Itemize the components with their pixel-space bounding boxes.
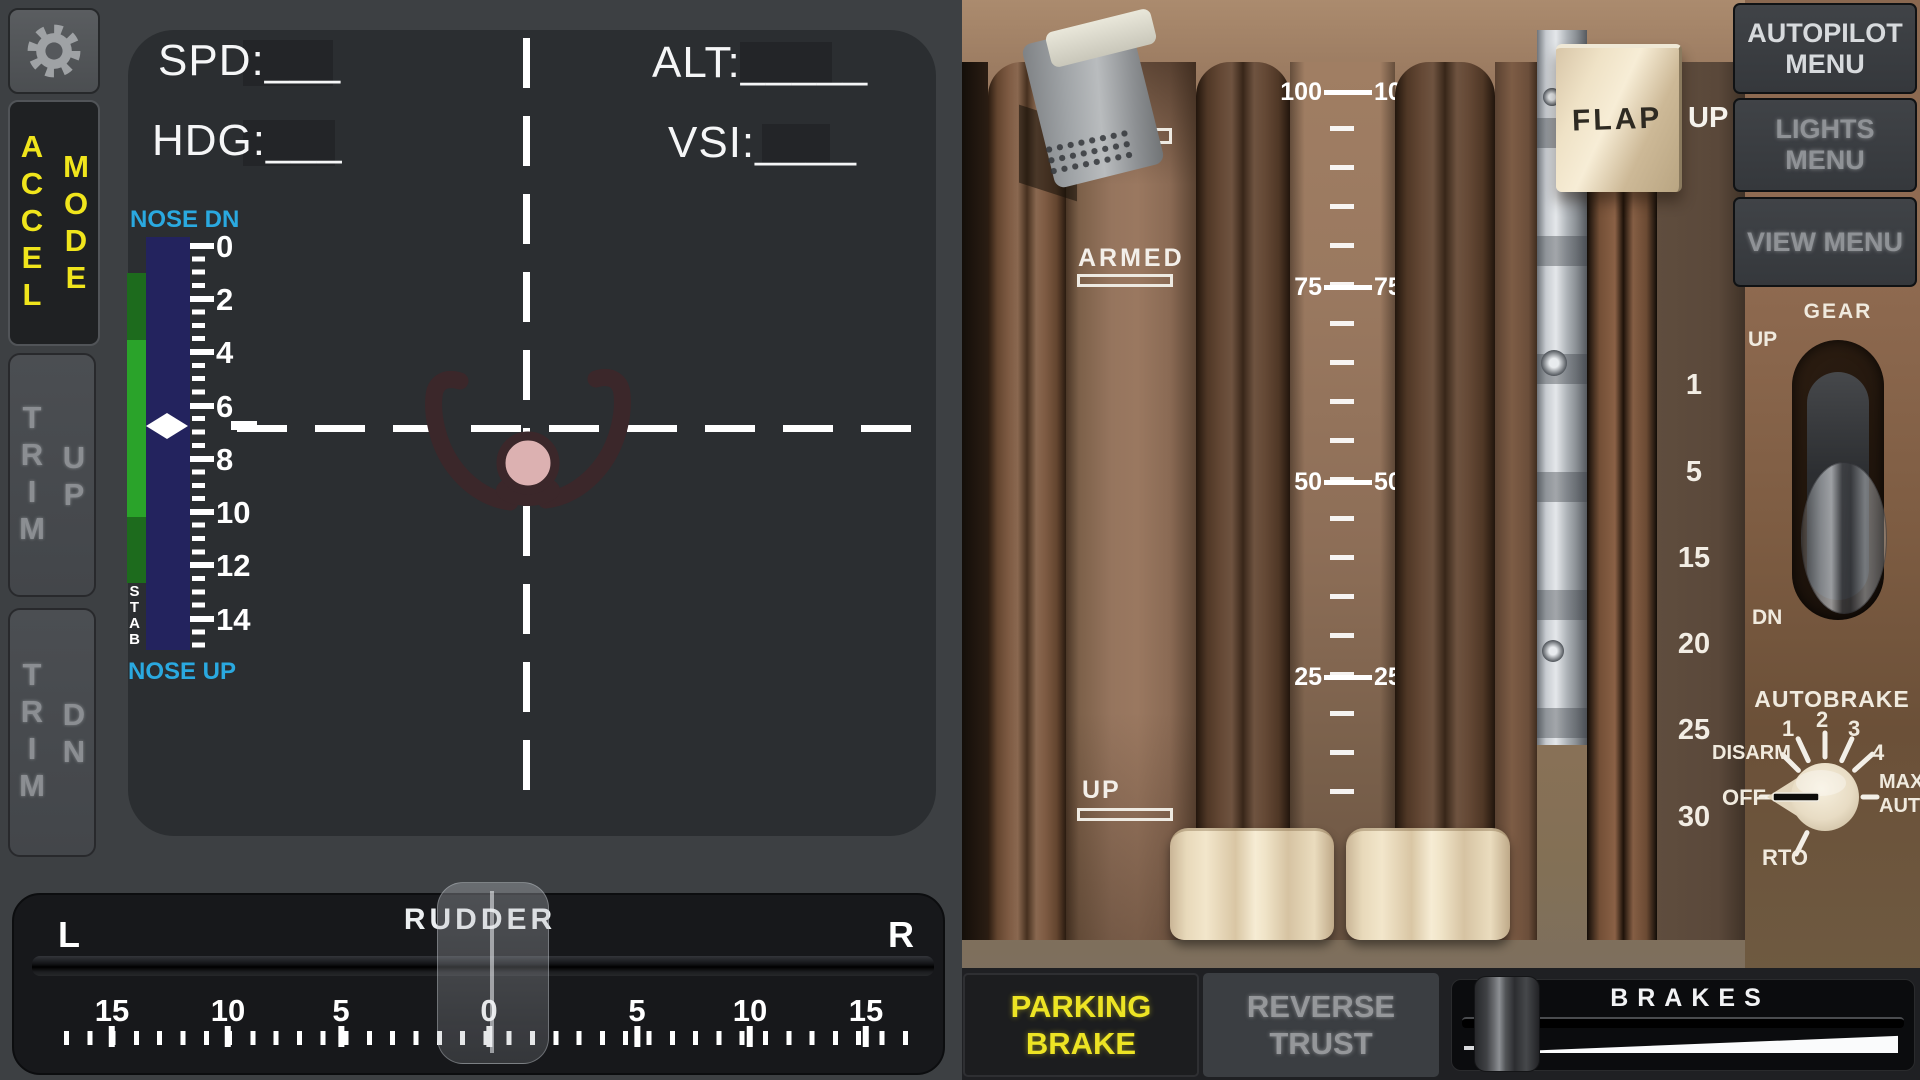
yoke-control-stick[interactable] <box>408 362 648 562</box>
flap-track-bolt-3 <box>1542 640 1564 662</box>
thrust-75-left: 75 <box>1272 273 1322 302</box>
rudder-tick-10l: 10 <box>211 993 245 1029</box>
autobrake-max-auto-label: MAX AUTO <box>1879 770 1920 818</box>
rudder-tick-10r: 10 <box>733 993 767 1029</box>
lights-menu-button[interactable]: LIGHTS MENU <box>1733 98 1917 192</box>
nose-up-label: NOSE UP <box>128 658 236 686</box>
accel-label: ACCEL <box>18 128 46 313</box>
flap-handle-label: FLAP <box>1572 101 1663 138</box>
trim-up-word: TRIM <box>18 399 46 547</box>
flap-detent-30: 30 <box>1678 801 1710 834</box>
flap-detent-5: 5 <box>1686 456 1702 489</box>
rudder-tick-5r: 5 <box>628 993 645 1029</box>
brakes-title: BRAKES <box>1560 984 1820 1013</box>
thrust-50-line <box>1324 480 1372 485</box>
view-menu-button[interactable]: VIEW MENU <box>1733 197 1917 287</box>
rudder-right-label: R <box>888 914 914 956</box>
rudder-tick-15l: 15 <box>95 993 129 1029</box>
flap-detent-15: 15 <box>1678 542 1710 575</box>
autobrake-1-label: 1 <box>1782 716 1794 742</box>
flap-handle[interactable]: FLAP <box>1556 44 1682 192</box>
trim-down-button[interactable]: TRIM DN <box>8 608 96 857</box>
quadrant-pillar-5 <box>1587 62 1657 940</box>
gear-knob[interactable] <box>1801 462 1887 614</box>
trim-tick-10: 10 <box>216 495 268 531</box>
speedbrake-armed-label: ARMED <box>1078 244 1185 273</box>
thrust-50-left: 50 <box>1272 468 1322 497</box>
trim-minor-ticks <box>192 243 205 649</box>
flap-detent-25: 25 <box>1678 714 1710 747</box>
thrust-25-line <box>1324 675 1372 680</box>
flap-track-bolt-2 <box>1541 350 1567 376</box>
rudder-tick-5l: 5 <box>332 993 349 1029</box>
mode-label: MODE <box>62 148 90 296</box>
trim-tick-6: 6 <box>216 389 268 425</box>
trim-gauge-column <box>146 237 190 650</box>
quadrant-pillar-3 <box>1395 62 1495 940</box>
trim-tick-2: 2 <box>216 282 268 318</box>
trim-green-band-main <box>127 340 146 517</box>
thrust-100-line <box>1324 90 1372 95</box>
flap-detent-20: 20 <box>1678 628 1710 661</box>
trim-tick-14: 14 <box>216 602 268 638</box>
rudder-handle-centerline <box>490 891 494 1053</box>
speedbrake-up-detent-box <box>1077 808 1173 821</box>
quadrant-pillar-2 <box>1196 62 1290 940</box>
thrust-25-left: 25 <box>1272 663 1322 692</box>
speedbrake-armed-detent-box <box>1077 274 1173 287</box>
flap-position-label: UP <box>1688 102 1728 135</box>
speedbrake-up-label: UP <box>1082 776 1121 805</box>
trim-dn-word: TRIM <box>18 656 46 804</box>
reverse-thrust-button[interactable]: REVERSE TRUST <box>1203 973 1439 1077</box>
alt-label: ALT:_____ <box>652 38 868 88</box>
quadrant-dark-edge <box>962 62 988 940</box>
autobrake-disarm-label: DISARM <box>1712 742 1786 765</box>
settings-button[interactable] <box>8 8 100 94</box>
gear-up-label: UP <box>1748 328 1777 352</box>
trim-green-band-lower <box>127 517 146 583</box>
trim-up-dir: UP <box>60 439 88 513</box>
trim-tick-8: 8 <box>216 442 268 478</box>
thrust-75-line <box>1324 285 1372 290</box>
throttle-handle-right[interactable] <box>1346 828 1510 940</box>
thrust-minor-ticks <box>1330 92 1354 810</box>
autobrake-3-label: 3 <box>1848 716 1860 742</box>
autobrake-rto-label: RTO <box>1762 845 1808 871</box>
vsi-label: VSI:____ <box>668 118 857 168</box>
quadrant-strip-4 <box>1495 62 1537 940</box>
speedbrake-lever[interactable] <box>1015 18 1175 198</box>
rudder-handle[interactable] <box>437 882 549 1064</box>
throttle-handle-left[interactable] <box>1170 828 1334 940</box>
flight-sim-cockpit: ACCEL MODE TRIM UP TRIM DN SPD:___ HDG:_… <box>0 0 1920 1080</box>
rudder-left-label: L <box>58 914 80 956</box>
flap-detent-1: 1 <box>1686 369 1702 402</box>
autobrake-4-label: 4 <box>1872 740 1884 766</box>
brakes-handle[interactable] <box>1474 976 1540 1072</box>
stab-label: STAB <box>127 584 142 648</box>
trim-up-button[interactable]: TRIM UP <box>8 353 96 597</box>
trim-tick-12: 12 <box>216 548 268 584</box>
autobrake-off-label: OFF <box>1722 785 1766 811</box>
autopilot-menu-button[interactable]: AUTOPILOT MENU <box>1733 3 1917 94</box>
trim-current-mark <box>231 421 257 430</box>
accel-mode-button[interactable]: ACCEL MODE <box>8 100 100 346</box>
trim-dn-dir: DN <box>60 696 88 770</box>
gear-dn-label: DN <box>1752 606 1782 630</box>
gear-title: GEAR <box>1796 300 1880 324</box>
thrust-100-left: 100 <box>1272 78 1322 107</box>
spd-label: SPD:___ <box>158 36 341 86</box>
rudder-tick-15r: 15 <box>849 993 883 1029</box>
parking-brake-button[interactable]: PARKING BRAKE <box>963 973 1199 1077</box>
autobrake-2-label: 2 <box>1816 707 1828 733</box>
gear-icon <box>21 18 87 84</box>
trim-tick-4: 4 <box>216 335 268 371</box>
hdg-label: HDG:___ <box>152 116 342 166</box>
trim-green-band-upper <box>127 273 146 340</box>
trim-tick-0: 0 <box>216 229 268 265</box>
